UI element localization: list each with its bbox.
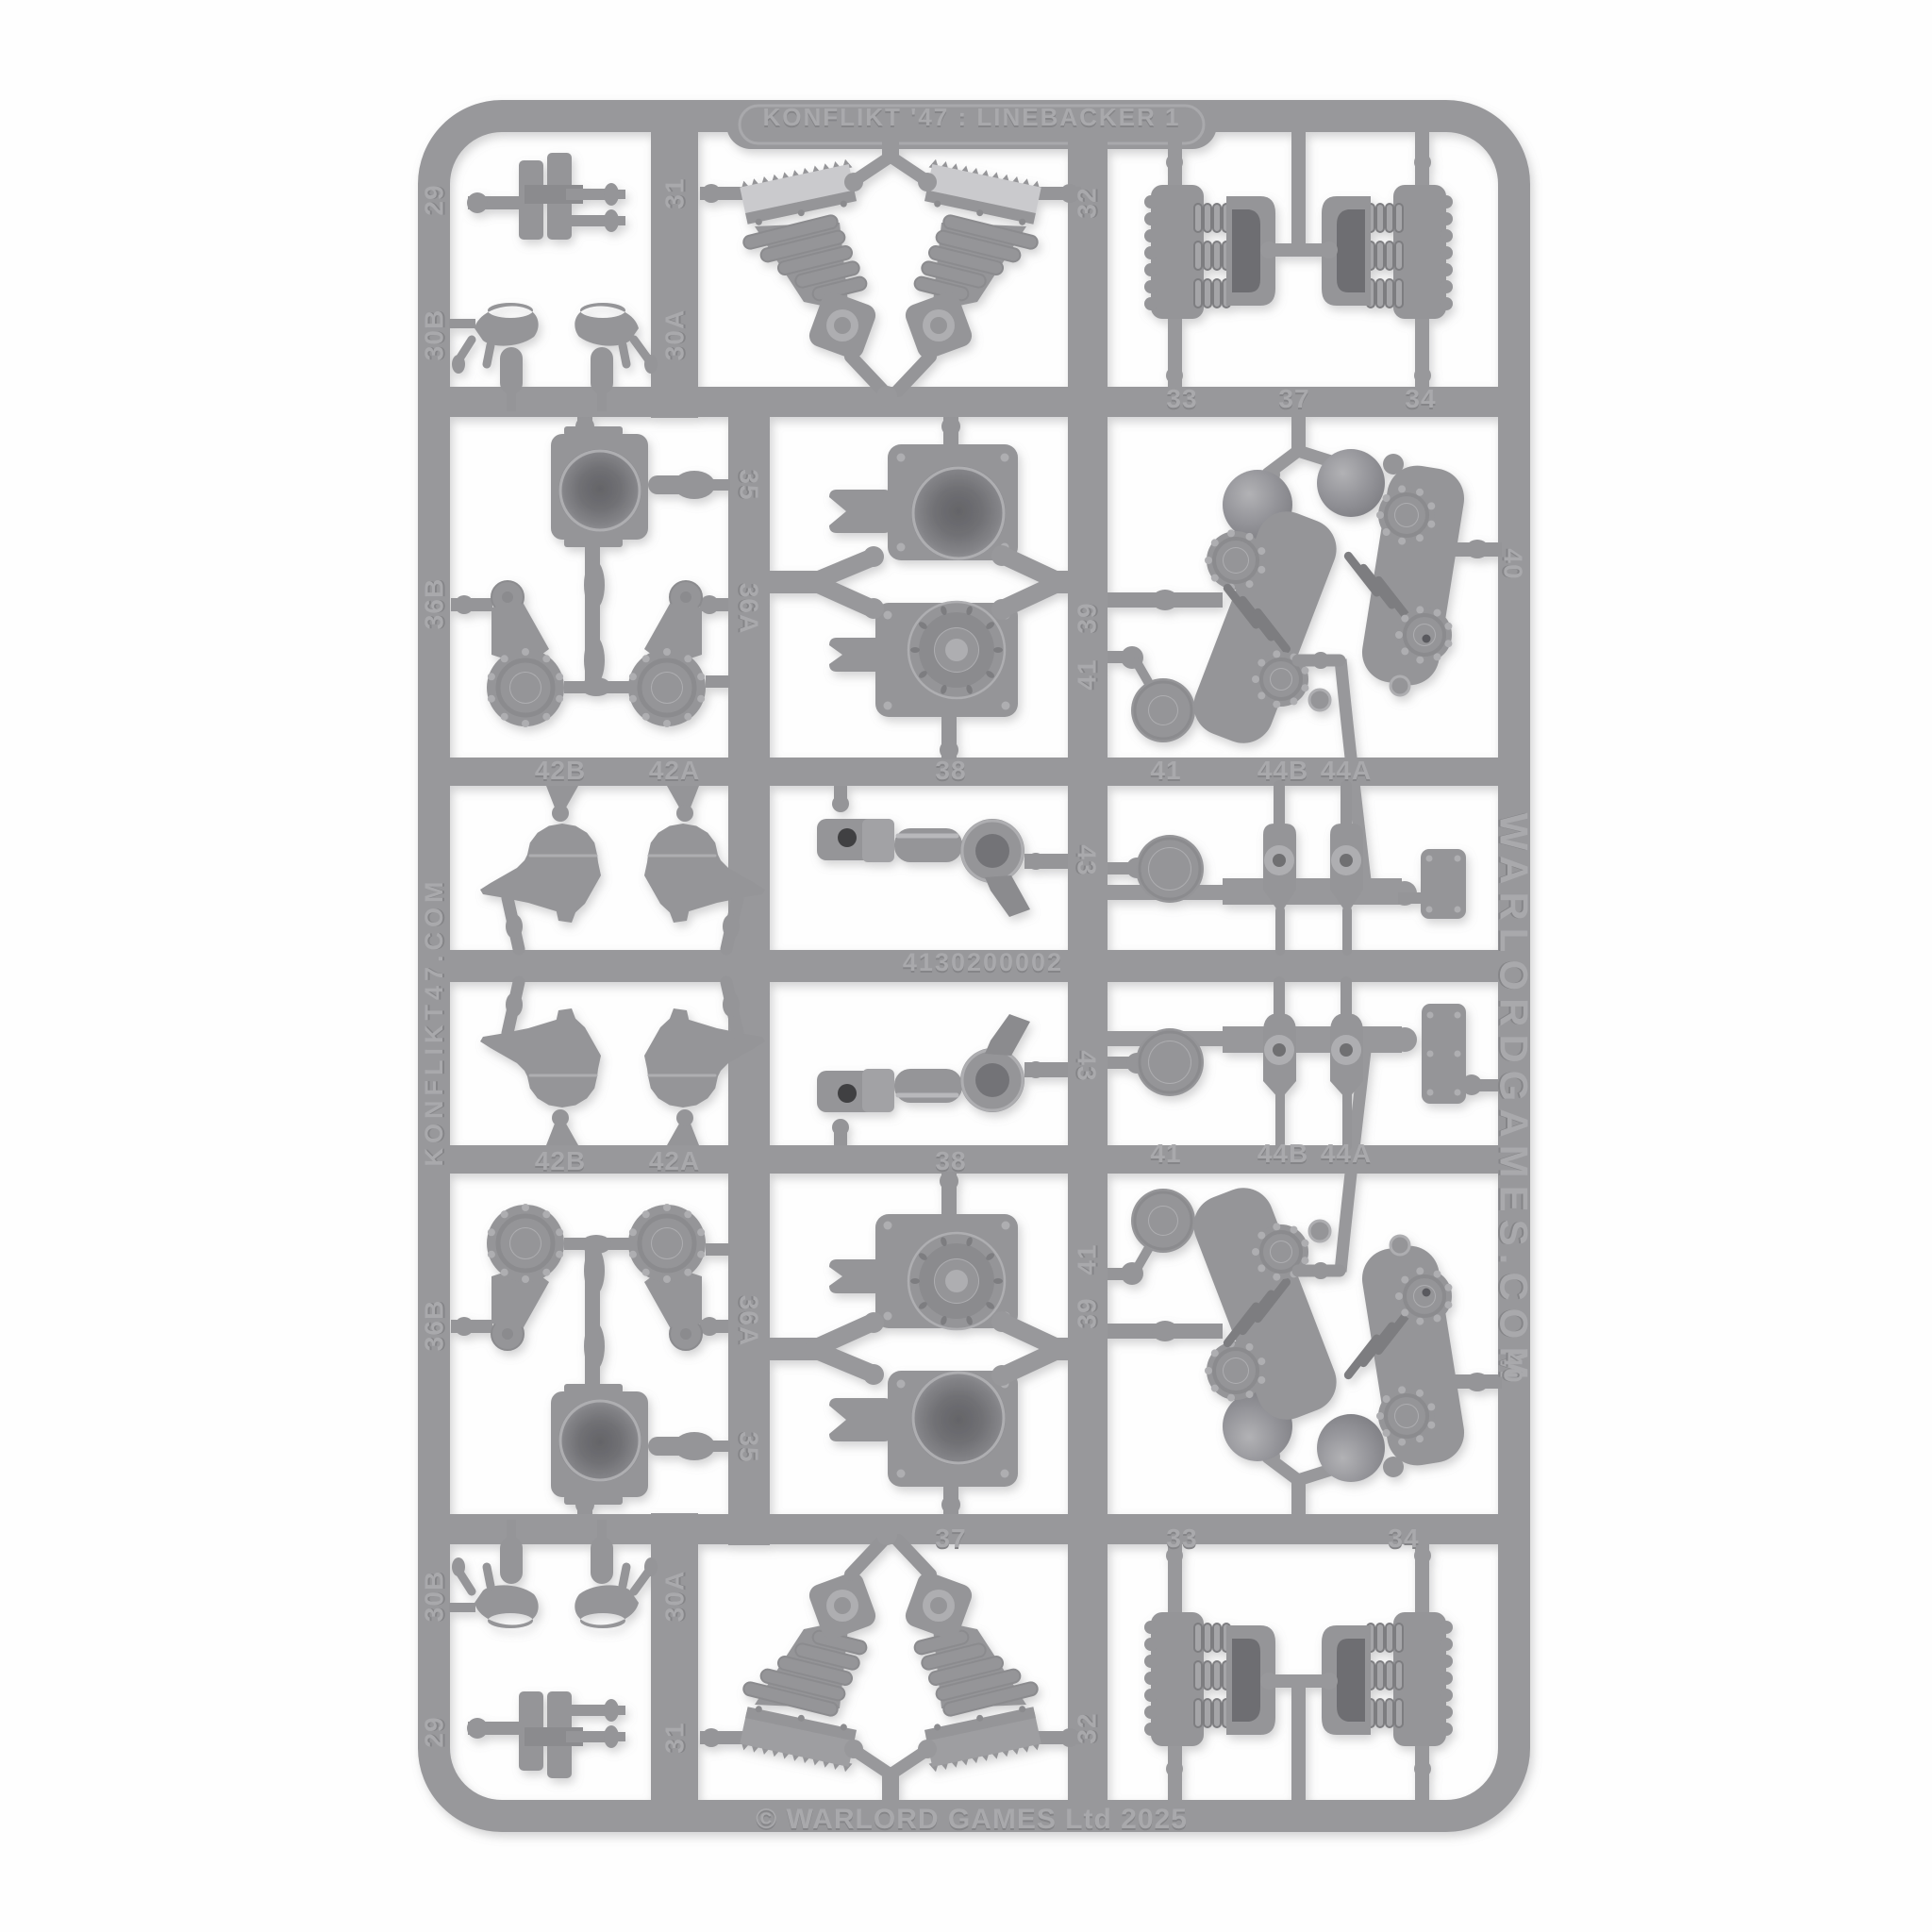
svg-text:30A: 30A <box>660 309 690 360</box>
svg-text:31: 31 <box>660 177 690 208</box>
svg-text:43: 43 <box>1073 1050 1102 1081</box>
svg-text:© WARLORD GAMES Ltd 2025: © WARLORD GAMES Ltd 2025 <box>756 1804 1188 1835</box>
svg-text:33: 33 <box>1166 1524 1197 1553</box>
svg-text:38: 38 <box>935 756 966 785</box>
svg-text:36B: 36B <box>420 1300 449 1351</box>
svg-text:4130200002: 4130200002 <box>903 948 1063 976</box>
svg-text:42A: 42A <box>649 756 700 785</box>
svg-text:44A: 44A <box>1321 756 1372 785</box>
svg-text:29: 29 <box>420 1716 449 1747</box>
svg-text:36B: 36B <box>420 578 449 629</box>
svg-text:44B: 44B <box>1257 756 1308 785</box>
svg-text:35: 35 <box>735 469 764 500</box>
svg-text:32: 32 <box>1073 1712 1102 1743</box>
svg-text:36A: 36A <box>735 583 764 634</box>
svg-text:34: 34 <box>1405 384 1436 413</box>
svg-text:41: 41 <box>1150 1139 1181 1168</box>
svg-text:38: 38 <box>935 1146 966 1175</box>
svg-text:40: 40 <box>1499 548 1528 579</box>
svg-text:42B: 42B <box>535 756 586 785</box>
svg-text:39: 39 <box>1073 602 1102 633</box>
svg-text:39: 39 <box>1073 1297 1102 1328</box>
svg-text:KONFLIKT '47 : LINEBACKER 1: KONFLIKT '47 : LINEBACKER 1 <box>763 103 1181 131</box>
svg-text:41: 41 <box>1073 1243 1102 1274</box>
svg-text:32: 32 <box>1073 187 1102 218</box>
svg-text:37: 37 <box>935 1524 966 1553</box>
svg-text:42B: 42B <box>535 1146 586 1175</box>
svg-text:33: 33 <box>1166 384 1197 413</box>
svg-text:36A: 36A <box>735 1295 764 1346</box>
svg-text:42A: 42A <box>649 1146 700 1175</box>
svg-text:40: 40 <box>1499 1352 1528 1383</box>
svg-text:WARLORDGAMES.COM: WARLORDGAMES.COM <box>1492 813 1537 1388</box>
svg-text:30B: 30B <box>420 309 449 360</box>
svg-text:37: 37 <box>1278 384 1309 413</box>
svg-text:30A: 30A <box>660 1571 690 1622</box>
svg-text:31: 31 <box>660 1722 690 1753</box>
svg-text:43: 43 <box>1073 844 1102 875</box>
svg-text:30B: 30B <box>420 1571 449 1622</box>
svg-text:41: 41 <box>1150 756 1181 785</box>
svg-text:44A: 44A <box>1321 1139 1372 1168</box>
svg-text:KONFLIKT47.COM: KONFLIKT47.COM <box>420 876 448 1166</box>
svg-text:35: 35 <box>735 1431 764 1462</box>
svg-text:44B: 44B <box>1257 1139 1308 1168</box>
svg-text:41: 41 <box>1073 658 1102 690</box>
svg-text:29: 29 <box>420 184 449 215</box>
svg-text:34: 34 <box>1388 1524 1419 1553</box>
